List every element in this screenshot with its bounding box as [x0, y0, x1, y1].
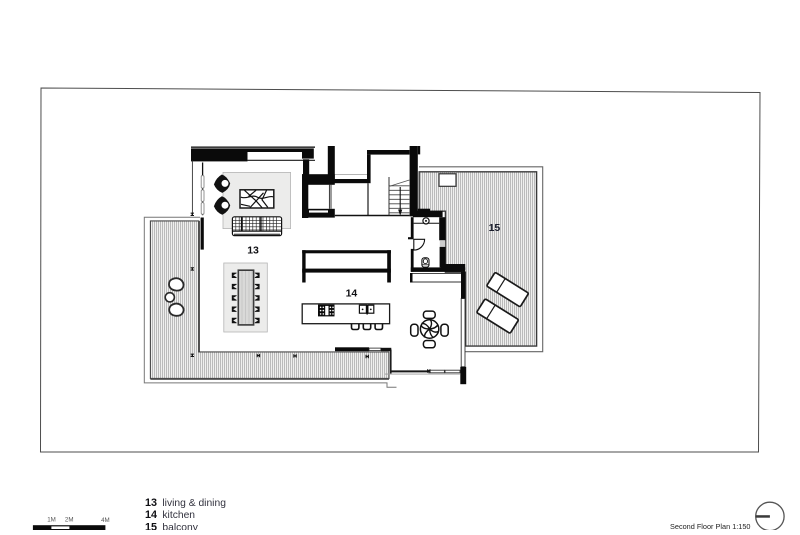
svg-text:1M: 1M [47, 517, 56, 524]
svg-text:13: 13 [145, 497, 157, 509]
svg-text:living & dining: living & dining [162, 498, 226, 509]
svg-text:15: 15 [489, 222, 501, 234]
svg-text:4M: 4M [101, 517, 110, 524]
svg-text:2M: 2M [65, 517, 74, 524]
svg-text:15: 15 [145, 522, 157, 530]
svg-text:14: 14 [145, 509, 157, 521]
svg-text:Second Floor Plan 1:150: Second Floor Plan 1:150 [670, 522, 751, 530]
svg-text:balcony: balcony [162, 523, 198, 530]
svg-text:kitchen: kitchen [162, 510, 195, 521]
svg-text:13: 13 [247, 245, 259, 257]
svg-text:14: 14 [346, 288, 358, 300]
